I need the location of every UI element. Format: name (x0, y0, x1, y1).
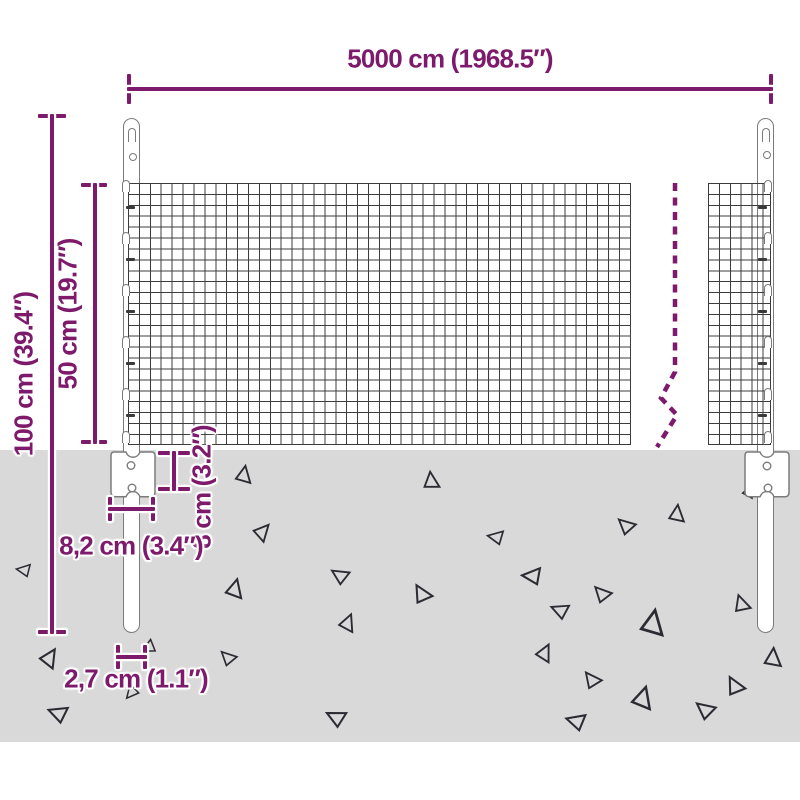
wire-clip (126, 258, 135, 261)
ground-triangle (518, 563, 544, 589)
ground-triangle (13, 560, 33, 580)
wire-clip (758, 362, 767, 365)
mesh-hook-icon (764, 232, 772, 244)
mesh-hook-icon (764, 388, 772, 400)
mesh-hook-icon (764, 284, 772, 296)
wire-clip (126, 310, 135, 313)
ground-triangle (231, 461, 256, 486)
wire-clip (758, 258, 767, 261)
dimension-mesh-height-label: 50 cm (19.7″) (53, 239, 84, 390)
wire-clip (126, 414, 135, 417)
mesh-hook-icon (122, 336, 130, 348)
mesh-hook-icon (764, 180, 772, 192)
right-anchor-plate (744, 451, 790, 499)
dimension-anchor-width-label: 8,2 cm (3.4″) (59, 531, 203, 562)
post-screw-hole (763, 151, 771, 159)
mesh-hook-icon (764, 336, 772, 348)
wire-clip (126, 206, 135, 209)
wire-clip (126, 362, 135, 365)
dimension-total-height-label: 100 cm (39.4″) (9, 292, 40, 457)
post-hook-icon (762, 128, 770, 142)
ground-triangle (419, 468, 443, 492)
ground-triangle (665, 501, 689, 525)
mesh-hook-icon (122, 388, 130, 400)
dimension-post-diameter-label: 2,7 cm (1.1″) (64, 664, 208, 695)
mesh-hook-icon (122, 180, 130, 192)
post-screw-hole (129, 153, 137, 161)
ground-triangle (483, 525, 506, 548)
wire-clip (758, 310, 767, 313)
left-anchor-plate (110, 451, 156, 499)
wire-clip (758, 206, 767, 209)
ground-triangle (634, 603, 671, 640)
dimension-width-label: 5000 cm (1968.5″) (347, 44, 553, 75)
fence-dimension-diagram: 5000 cm (1968.5″) 100 cm (39.4″) 50 cm (… (0, 0, 800, 800)
ground-triangle (760, 644, 786, 670)
mesh-panel-left (128, 183, 631, 445)
length-break-line (628, 175, 712, 460)
mesh-hook-icon (122, 284, 130, 296)
wire-clip (758, 414, 767, 417)
mesh-hook-icon (764, 431, 772, 443)
post-hook-icon (128, 128, 136, 142)
mesh-hook-icon (122, 232, 130, 244)
mesh-hook-icon (122, 431, 130, 443)
mesh-panel-right (708, 183, 771, 445)
